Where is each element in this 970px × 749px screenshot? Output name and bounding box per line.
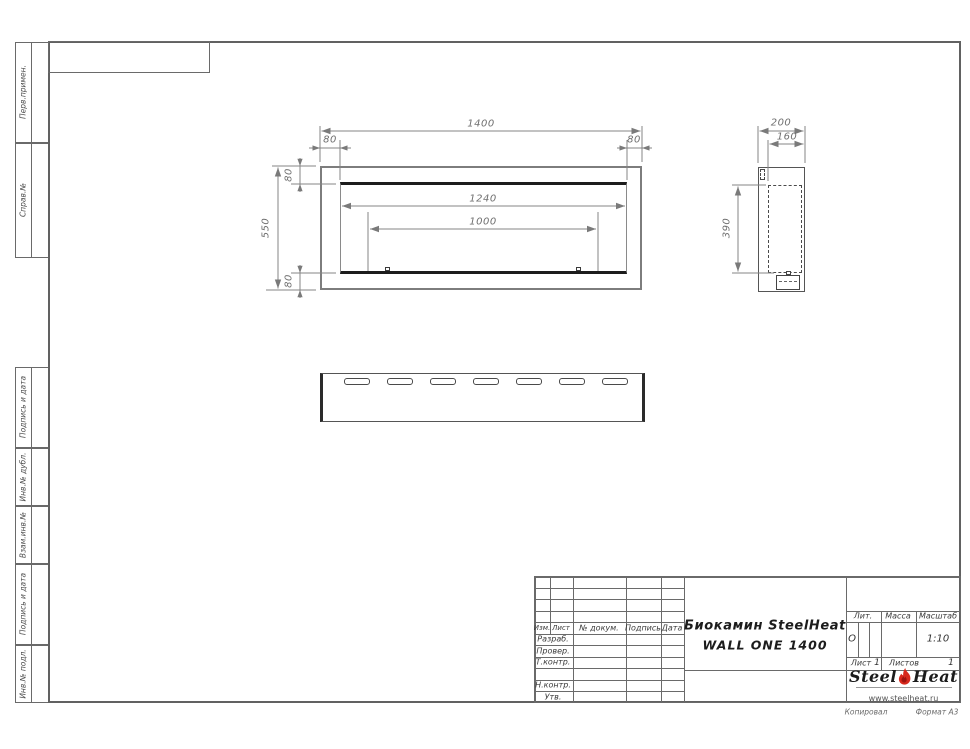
dim-label-200: 200 <box>771 118 792 129</box>
col-header-no-dokum: № докум. <box>579 624 618 633</box>
dim-label-160: 160 <box>777 132 798 143</box>
margin-label-inv-podl: Инв.№ подл. <box>19 649 28 698</box>
col-header-izm: Изм. <box>534 624 550 632</box>
role-t-kontr: Т.контр. <box>536 658 571 667</box>
col-header-data: Дата <box>662 624 683 633</box>
air-slot <box>473 378 499 385</box>
dim-label-80-top: 80 <box>284 168 295 182</box>
margin-label-sprav-no: Справ.№ <box>19 183 28 217</box>
side-view-hidden-bracket <box>760 169 765 180</box>
dim-label-80-left: 80 <box>323 135 337 146</box>
dim-label-1240: 1240 <box>469 194 496 205</box>
drawing-sheet: Перв.примен. Справ.№ Подпись и дата Инв.… <box>0 0 970 749</box>
lit-label: Лит. <box>854 612 872 621</box>
dim-label-390: 390 <box>722 218 733 239</box>
top-left-reference-box <box>48 41 210 73</box>
col-header-podpis: Подпись <box>625 624 661 633</box>
title-block: Изм. Лист № докум. Подпись Дата Разраб. … <box>534 576 961 703</box>
margin-label-podpis-data-2: Подпись и дата <box>19 573 28 635</box>
margin-label-podpis-data-1: Подпись и дата <box>19 376 28 438</box>
side-view-burner-box <box>776 275 800 290</box>
plan-view-outline <box>320 373 645 422</box>
kopiroval-label: Копировал <box>845 708 888 717</box>
logo-text-heat: Heat <box>913 667 958 686</box>
air-slot <box>516 378 542 385</box>
masshtab-label: Масштаб <box>919 612 957 621</box>
air-slot <box>559 378 585 385</box>
lit-value: О <box>848 634 856 645</box>
role-n-kontr: Н.контр. <box>535 681 571 690</box>
air-slot <box>387 378 413 385</box>
dim-label-80-bottom: 80 <box>284 274 295 288</box>
side-view-hidden-body <box>768 185 802 273</box>
logo-text-steel: Steel <box>849 667 897 686</box>
dim-label-550: 550 <box>261 218 272 239</box>
burner-nozzle-right <box>576 267 581 271</box>
massa-label: Масса <box>885 612 911 621</box>
margin-label-inv-dubl: Инв.№ дубл. <box>19 453 28 502</box>
role-utv: Утв. <box>545 693 562 702</box>
air-slot <box>602 378 628 385</box>
dim-label-1000: 1000 <box>469 217 496 228</box>
flame-icon <box>898 668 912 685</box>
air-slot <box>430 378 456 385</box>
side-view-burner-bump <box>786 271 791 275</box>
document-title-line2: WALL ONE 1400 <box>702 638 827 653</box>
col-header-list: Лист <box>552 624 570 632</box>
burner-nozzle-left <box>385 267 390 271</box>
logo-url: www.steelheat.ru <box>869 694 939 703</box>
format-label: Формат А3 <box>916 708 959 717</box>
role-prover: Провер. <box>536 647 569 656</box>
dim-label-1400: 1400 <box>467 119 494 130</box>
air-slot <box>344 378 370 385</box>
margin-label-vzam-inv: Взам.инв.№ <box>19 512 28 558</box>
steelheat-logo: Steel Heat www.steelheat.ru <box>846 670 961 702</box>
margin-label-perv-primen: Перв.примен. <box>19 65 28 119</box>
masshtab-value: 1:10 <box>927 634 949 645</box>
role-razrab: Разраб. <box>537 635 568 644</box>
side-view-burner-dash <box>779 281 797 282</box>
dim-label-80-right: 80 <box>627 135 641 146</box>
document-title-line1: Биокамин SteelHeat <box>684 619 846 634</box>
